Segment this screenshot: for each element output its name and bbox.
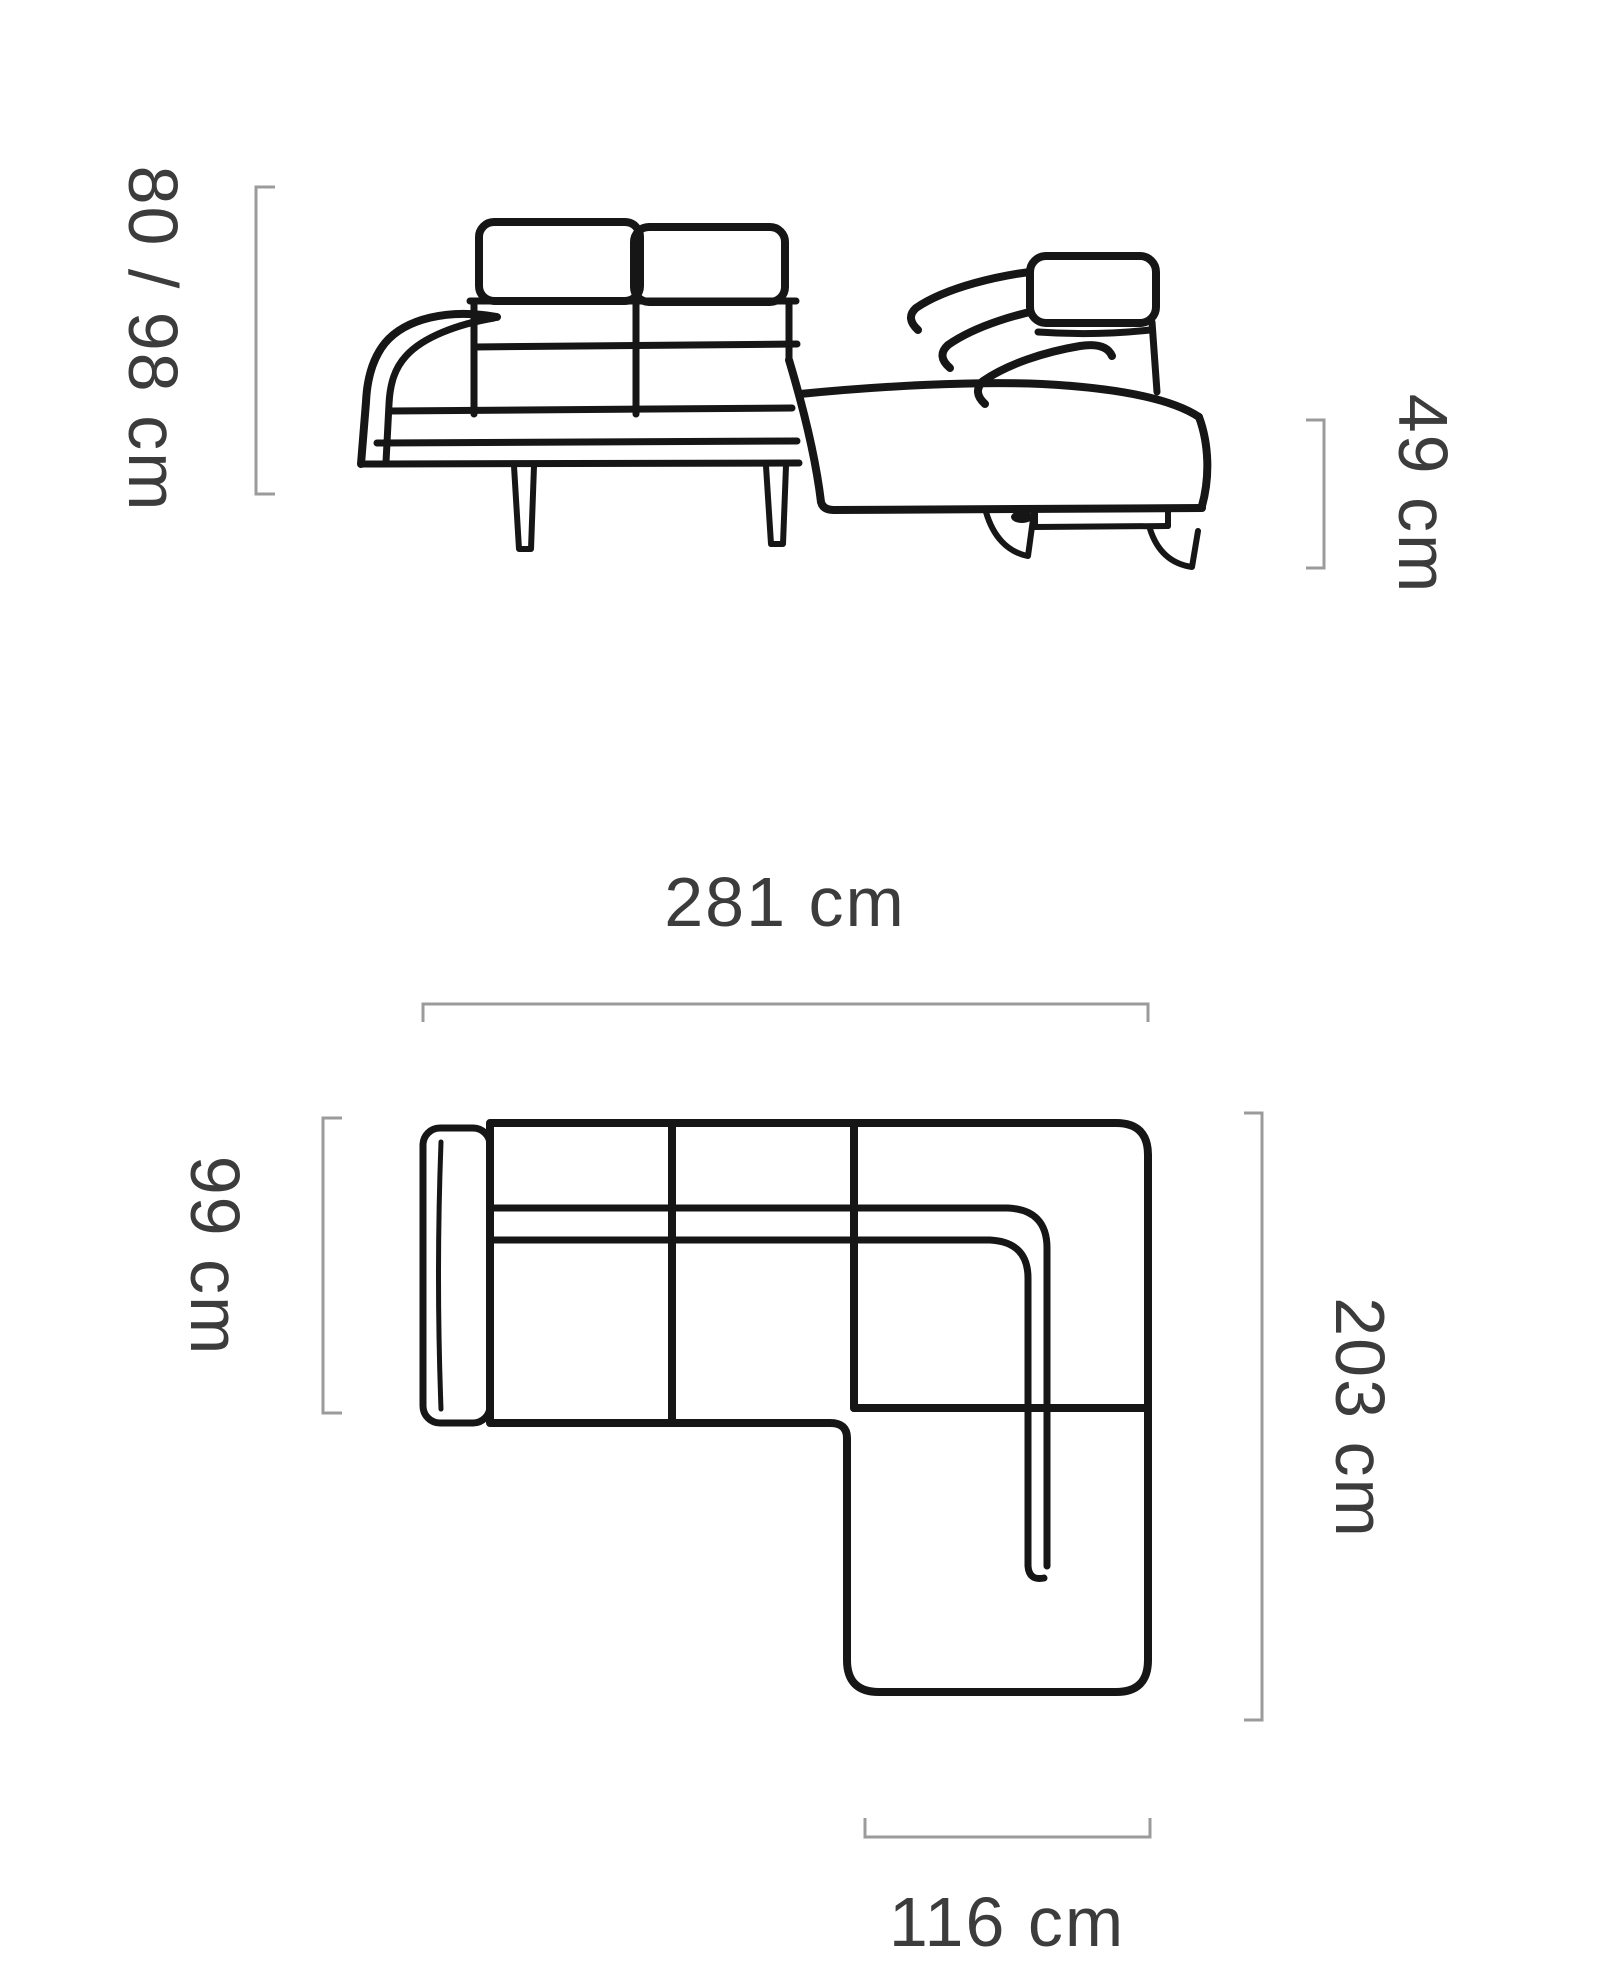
bracket-seat-height	[1306, 420, 1324, 568]
dim-label-height: 80 / 98 cm	[118, 166, 188, 513]
chaise-right-edge	[1199, 417, 1207, 506]
front-view-drawing	[361, 222, 1207, 567]
top-view-drawing	[423, 1123, 1148, 1692]
dim-label-seat-height: 49 cm	[1388, 394, 1458, 595]
headrest-left	[479, 222, 640, 301]
base-bottom-edge	[361, 463, 799, 464]
bracket-chaise	[865, 1818, 1150, 1837]
dim-label-chaise: 116 cm	[889, 1887, 1125, 1957]
chaise-bottom-edge	[834, 508, 1202, 510]
headrest-right	[1030, 256, 1156, 323]
chaise-connector-dot	[1011, 511, 1033, 523]
bracket-side	[1244, 1113, 1262, 1720]
diagram-artwork	[0, 0, 1600, 1975]
right-back-seam	[1038, 330, 1150, 334]
plan-armrest-seam	[439, 1142, 442, 1409]
bracket-height	[256, 187, 275, 494]
front-leg-middle	[766, 466, 786, 544]
chaise-top-edge	[800, 383, 1199, 417]
corner-cushion-bottom	[978, 345, 1112, 404]
seat-top-edge	[390, 408, 792, 411]
dim-label-side: 203 cm	[1325, 1297, 1395, 1539]
chaise-leg-right	[1150, 529, 1198, 567]
plan-backrest-outer	[490, 1208, 1047, 1566]
backrest-horizontal-seam	[474, 344, 797, 347]
dim-label-depth: 99 cm	[180, 1156, 250, 1357]
front-leg-left	[514, 466, 534, 549]
plan-armrest	[423, 1128, 490, 1423]
bracket-depth	[323, 1118, 342, 1413]
dim-label-width: 281 cm	[664, 867, 906, 937]
bracket-width	[423, 1004, 1148, 1022]
sofa-dimension-diagram: 80 / 98 cm 49 cm 281 cm 99 cm 203 cm 116…	[0, 0, 1600, 1975]
headrest-middle	[634, 227, 785, 302]
chaise-left-silhouette	[789, 360, 834, 510]
right-back-edge	[1152, 322, 1157, 392]
seat-seam	[377, 441, 797, 443]
